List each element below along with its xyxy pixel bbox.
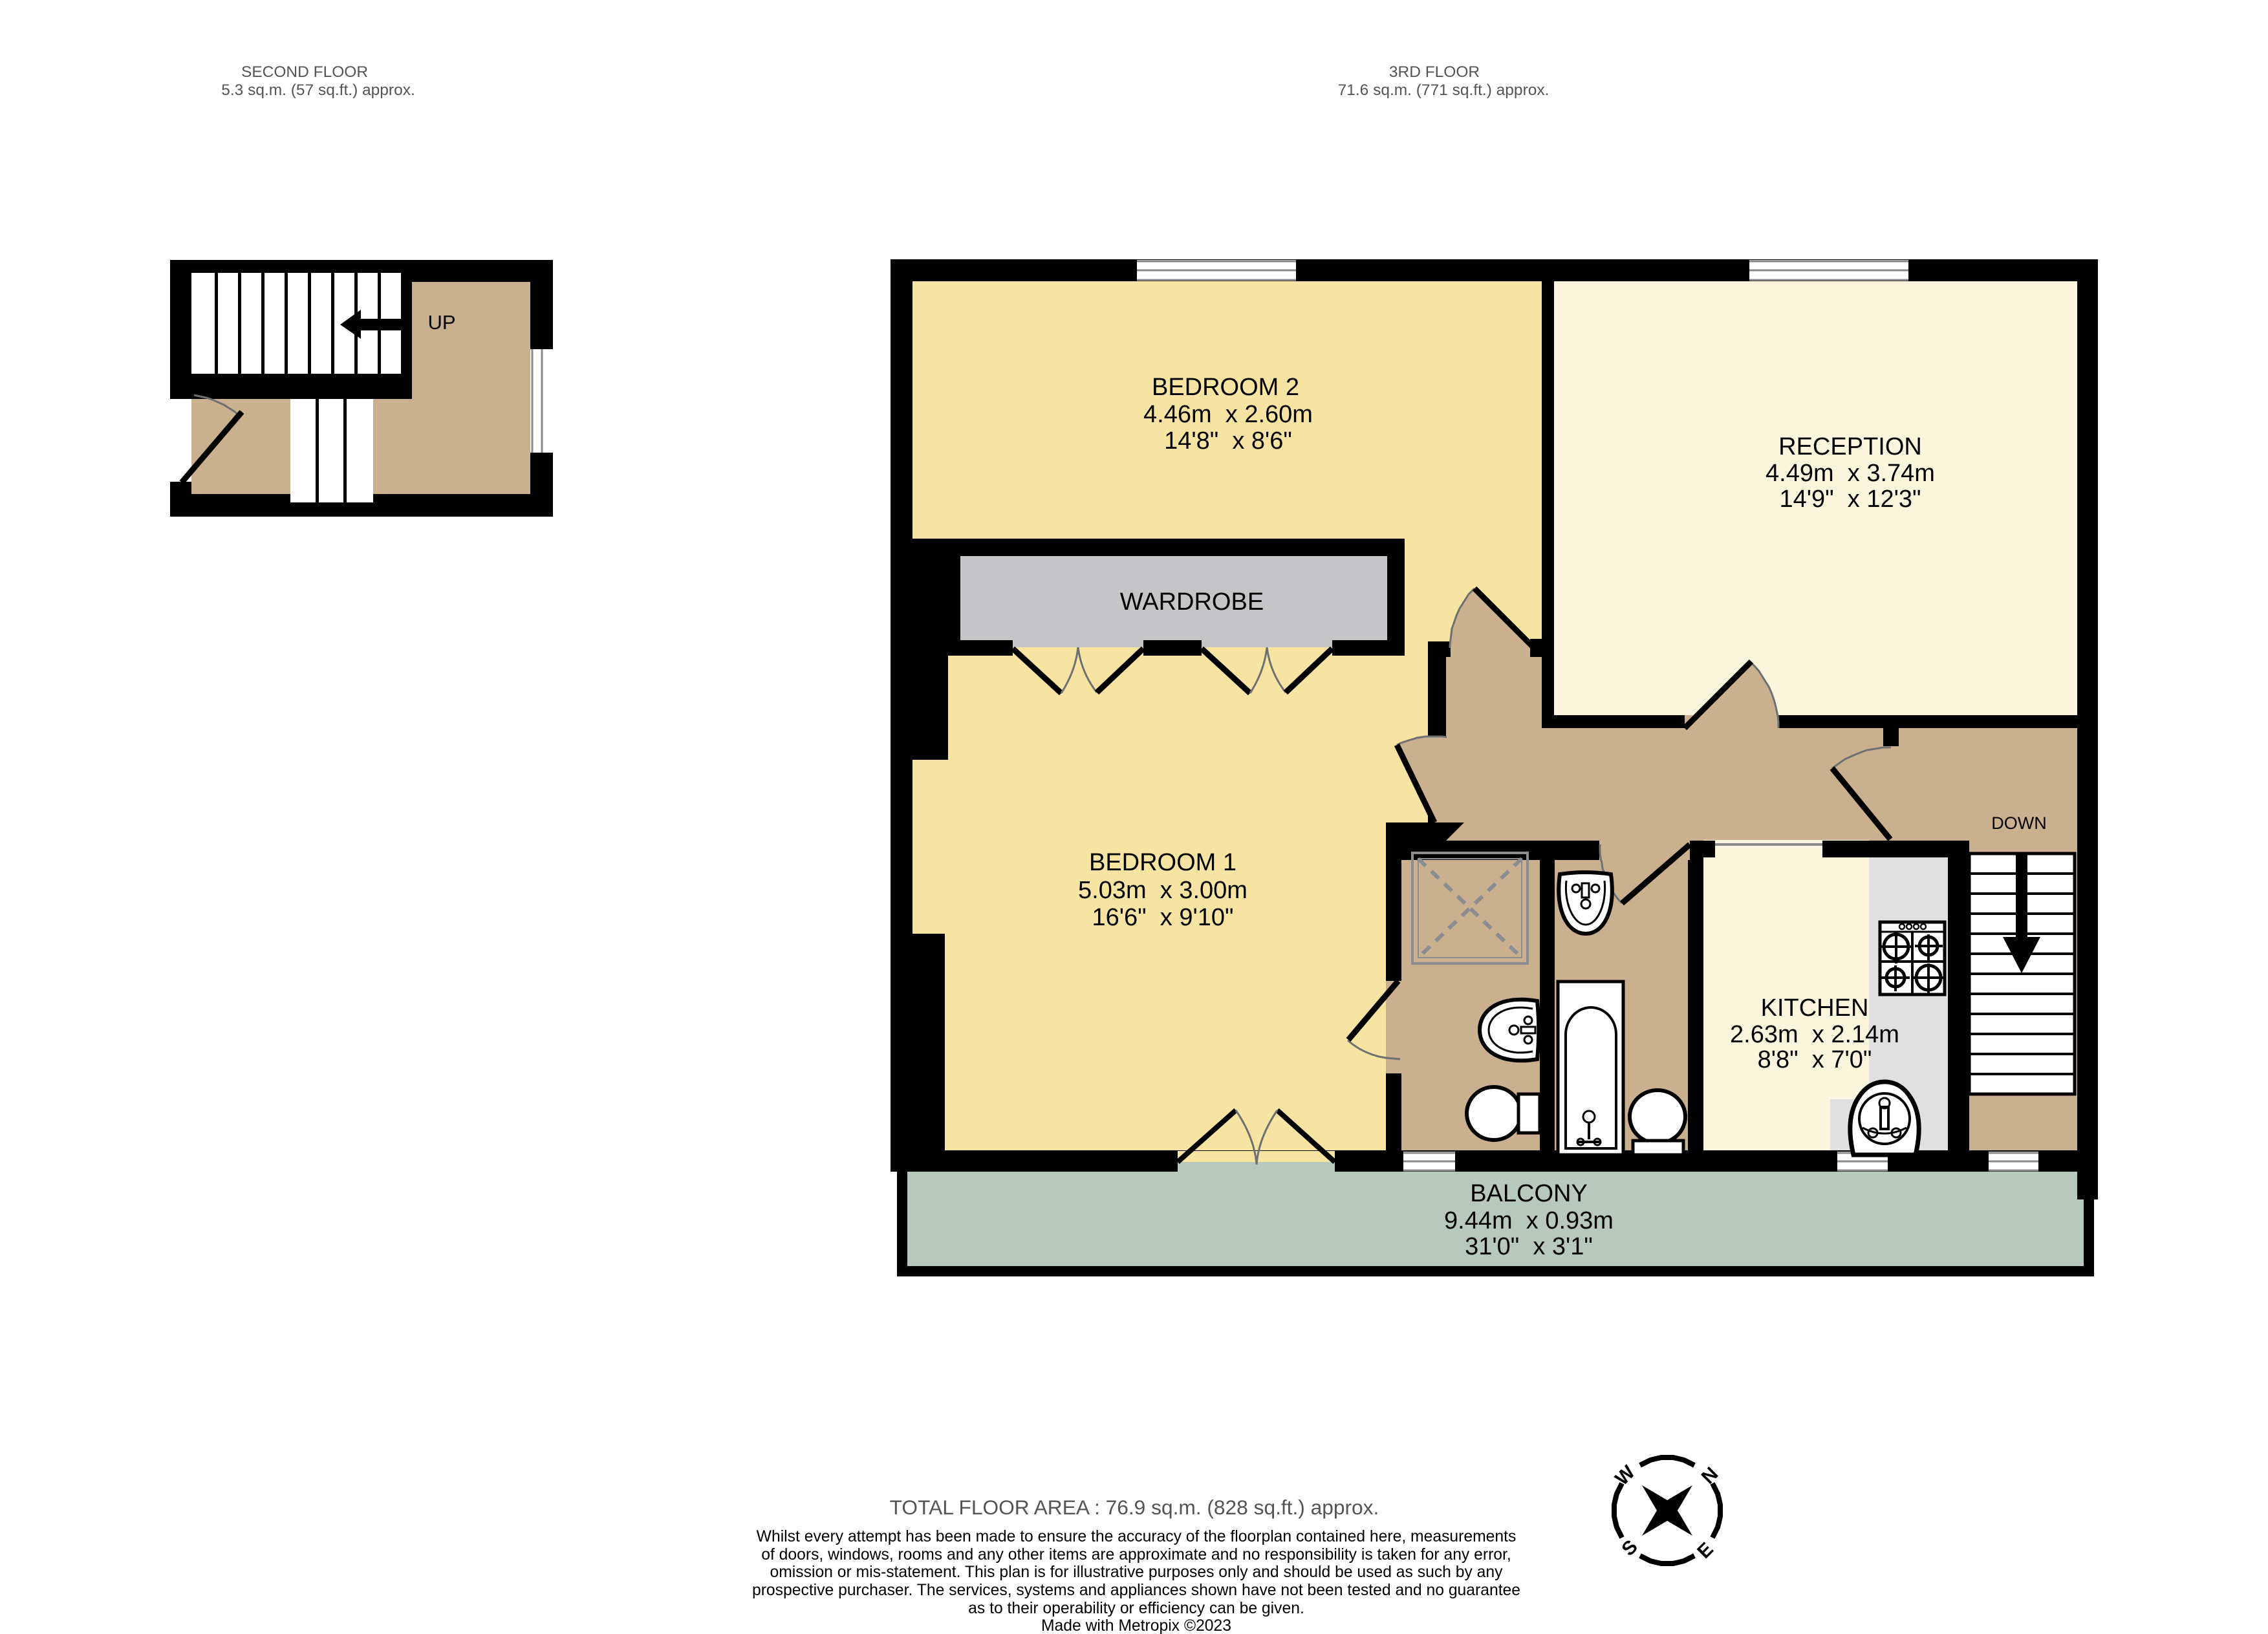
svg-text:4.46m x 2.60m: 4.46m x 2.60m [1143,401,1313,428]
svg-text:3RD FLOOR: 3RD FLOOR [1389,63,1480,81]
svg-text:5.3 sq.m. (57 sq.ft.) approx.: 5.3 sq.m. (57 sq.ft.) approx. [221,81,415,99]
svg-text:of doors, windows, rooms and a: of doors, windows, rooms and any other i… [761,1546,1511,1564]
svg-text:DOWN: DOWN [1991,813,2046,833]
svg-text:31'0" x 3'1": 31'0" x 3'1" [1465,1233,1593,1260]
svg-text:14'8" x 8'6": 14'8" x 8'6" [1164,427,1292,455]
svg-text:RECEPTION: RECEPTION [1778,433,1922,460]
svg-text:Made with Metropix ©2023: Made with Metropix ©2023 [1041,1617,1231,1634]
svg-text:5.03m x 3.00m: 5.03m x 3.00m [1078,877,1247,904]
svg-text:as to their operability or eff: as to their operability or efficiency ca… [968,1600,1304,1617]
svg-text:2.63m x 2.14m: 2.63m x 2.14m [1730,1021,1899,1048]
svg-text:71.6 sq.m. (771 sq.ft.) approx: 71.6 sq.m. (771 sq.ft.) approx. [1338,81,1550,99]
svg-text:TOTAL FLOOR AREA : 76.9 sq.m.: TOTAL FLOOR AREA : 76.9 sq.m. (828 sq.ft… [890,1496,1379,1519]
svg-text:prospective purchaser. The ser: prospective purchaser. The services, sys… [752,1582,1520,1599]
svg-text:9.44m x 0.93m: 9.44m x 0.93m [1444,1207,1614,1234]
svg-text:BEDROOM 1: BEDROOM 1 [1089,849,1237,876]
svg-text:8'8" x 7'0": 8'8" x 7'0" [1758,1046,1872,1073]
svg-text:4.49m x 3.74m: 4.49m x 3.74m [1766,460,1935,487]
svg-text:BEDROOM 2: BEDROOM 2 [1152,374,1299,401]
svg-text:Whilst every attempt has been: Whilst every attempt has been made to en… [757,1528,1517,1545]
svg-text:14'9" x 12'3": 14'9" x 12'3" [1780,486,1921,513]
svg-text:BALCONY: BALCONY [1470,1180,1588,1207]
svg-text:UP: UP [427,311,455,334]
svg-text:16'6" x 9'10": 16'6" x 9'10" [1092,904,1234,931]
svg-text:KITCHEN: KITCHEN [1761,994,1869,1022]
svg-text:SECOND FLOOR: SECOND FLOOR [241,63,368,81]
svg-text:omission or mis-statement. Thi: omission or mis-statement. This plan is … [770,1564,1504,1581]
svg-text:WARDROBE: WARDROBE [1120,588,1264,616]
